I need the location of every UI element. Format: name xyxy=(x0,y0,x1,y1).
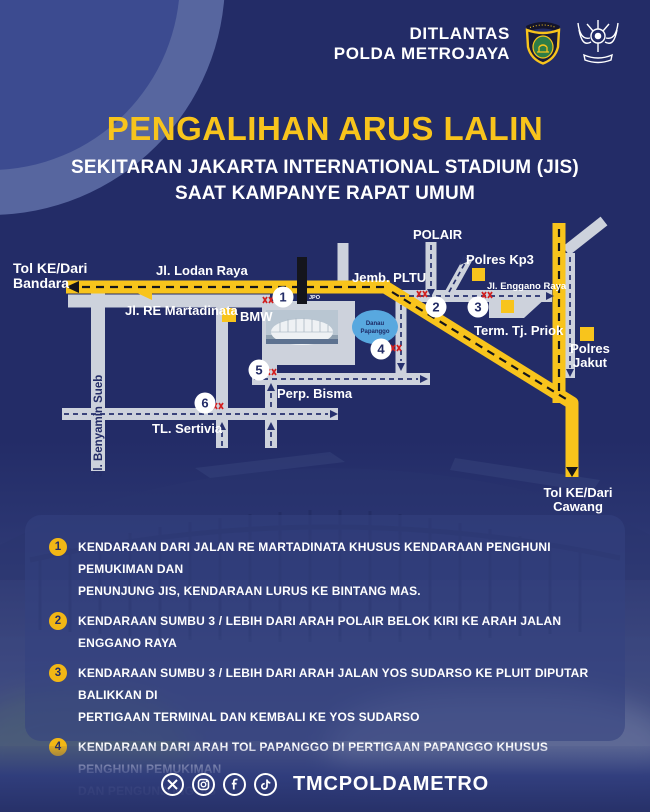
label-jpo: JPO xyxy=(309,295,321,301)
label-polres-jakut-2: Jakut xyxy=(573,355,608,370)
instruction-text: KENDARAAN SUMBU 3 / LEBIH DARI ARAH JALA… xyxy=(78,662,599,728)
tiktok-icon[interactable] xyxy=(254,773,277,796)
label-term-priok: Term. Tj. Priok xyxy=(474,323,564,338)
marker-4: 4 xyxy=(371,339,392,360)
svg-text:2: 2 xyxy=(432,300,439,315)
instruction-line: KENDARAAN DARI JALAN RE MARTADINATA KHUS… xyxy=(78,536,599,580)
label-lodan: Jl. Lodan Raya xyxy=(156,263,249,278)
marker-2: 2 xyxy=(426,297,447,318)
svg-text:1: 1 xyxy=(279,290,286,305)
traffic-corps-emblem-icon xyxy=(574,16,622,71)
subtitle-line-1: SEKITARAN JAKARTA INTERNATIONAL STADIUM … xyxy=(0,155,650,181)
marker-6: 6 xyxy=(195,393,216,414)
instruction-item-3: 3 KENDARAAN SUMBU 3 / LEBIH DARI ARAH JA… xyxy=(49,662,599,728)
road-northeast-stub xyxy=(566,221,604,251)
social-handle: TMCPOLDAMETRO xyxy=(293,773,489,796)
label-tol-cawang-2: Cawang xyxy=(553,499,603,514)
instruction-line: PERTIGAAN TERMINAL DAN KEMBALI KE YOS SU… xyxy=(78,706,599,728)
label-tol-cawang-1: Tol KE/Dari xyxy=(543,485,612,500)
metro-jaya-badge-icon xyxy=(522,17,564,70)
header-agency: DITLANTAS POLDA METROJAYA xyxy=(334,16,622,71)
page-title: PENGALIHAN ARUS LALIN xyxy=(0,110,650,148)
label-bmw: BMW xyxy=(240,309,273,324)
instruction-item-2: 2 KENDARAAN SUMBU 3 / LEBIH DARI ARAH PO… xyxy=(49,610,599,654)
label-tol-bandara-2: Bandara xyxy=(13,275,69,291)
instruction-number-badge: 3 xyxy=(49,664,67,682)
traffic-map: JPO Danau Papanggo xyxy=(0,215,650,520)
footer: TMCPOLDAMETRO xyxy=(0,764,650,804)
facebook-icon[interactable] xyxy=(223,773,246,796)
stadium-photo xyxy=(266,310,338,345)
logo-group xyxy=(522,16,622,71)
label-benyamin: Jl. Benyamin Sueb xyxy=(93,375,105,477)
label-enggano: Jl. Enggano Raya xyxy=(487,281,567,292)
svg-text:4: 4 xyxy=(377,342,385,357)
instagram-icon[interactable] xyxy=(192,773,215,796)
instruction-item-1: 1 KENDARAAN DARI JALAN RE MARTADINATA KH… xyxy=(49,536,599,602)
label-jemb-pltu: Jemb. PLTU xyxy=(352,270,426,285)
agency-name: DITLANTAS POLDA METROJAYA xyxy=(334,24,510,63)
jpo-bar xyxy=(297,257,307,304)
poi-jakut-square xyxy=(580,327,594,341)
svg-text:6: 6 xyxy=(201,396,208,411)
instruction-number-badge: 2 xyxy=(49,612,67,630)
poster-root: DITLANTAS POLDA METROJAYA xyxy=(0,0,650,812)
marker-5: 5 xyxy=(249,360,270,381)
label-tl-sertivia: TL. Sertivia xyxy=(152,421,223,436)
svg-text:3: 3 xyxy=(474,300,481,315)
marker-3: 3 xyxy=(468,297,489,318)
label-tol-bandara-1: Tol KE/Dari xyxy=(13,260,87,276)
instruction-line: KENDARAAN SUMBU 3 / LEBIH DARI ARAH JALA… xyxy=(78,662,599,706)
terminal-loop xyxy=(489,297,547,318)
svg-text:5: 5 xyxy=(255,363,262,378)
label-danau-2: Papanggo xyxy=(360,329,389,335)
agency-line-1: DITLANTAS xyxy=(334,24,510,44)
marker-1: 1 xyxy=(273,287,294,308)
label-danau-1: Danau xyxy=(366,321,385,327)
lake-danau-papanggo: Danau Papanggo xyxy=(352,310,398,344)
instruction-line: PENUNJUNG JIS, KENDARAAN LURUS KE BINTAN… xyxy=(78,580,599,602)
instructions-panel: 1 KENDARAAN DARI JALAN RE MARTADINATA KH… xyxy=(25,515,625,741)
label-polres-kp3: Polres Kp3 xyxy=(466,252,534,267)
agency-line-2: POLDA METROJAYA xyxy=(334,44,510,64)
instruction-text: KENDARAAN DARI JALAN RE MARTADINATA KHUS… xyxy=(78,536,599,602)
instruction-number-badge: 1 xyxy=(49,538,67,556)
subtitle-line-2: SAAT KAMPANYE RAPAT UMUM xyxy=(0,181,650,207)
instruction-text: KENDARAAN SUMBU 3 / LEBIH DARI ARAH POLA… xyxy=(78,610,599,654)
page-subtitle: SEKITARAN JAKARTA INTERNATIONAL STADIUM … xyxy=(0,155,650,207)
x-icon[interactable] xyxy=(161,773,184,796)
instruction-line: KENDARAAN SUMBU 3 / LEBIH DARI ARAH POLA… xyxy=(78,610,599,654)
label-martadinata: Jl. RE Martadinata xyxy=(125,303,238,318)
label-polair: POLAIR xyxy=(413,227,463,242)
label-polres-jakut-1: Polres xyxy=(570,341,610,356)
poi-terminal-square xyxy=(501,300,514,313)
label-perp-bisma: Perp. Bisma xyxy=(277,386,353,401)
poi-kp3-square xyxy=(472,268,485,281)
